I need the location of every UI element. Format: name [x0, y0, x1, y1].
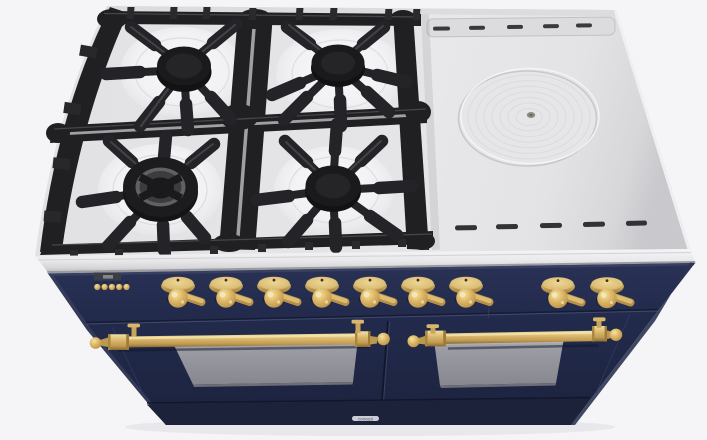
svg-text:concept: concept — [358, 417, 374, 422]
